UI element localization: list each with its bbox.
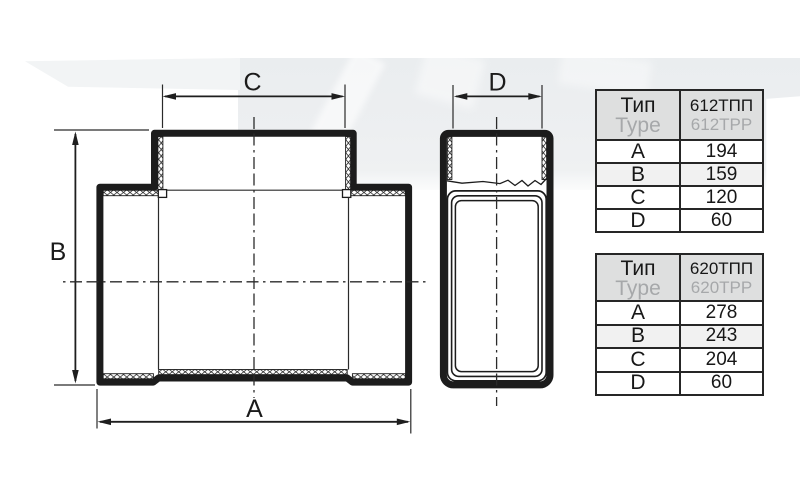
svg-text:C: C <box>243 69 261 97</box>
svg-text:D: D <box>488 69 506 97</box>
svg-text:B: B <box>50 238 67 266</box>
svg-text:A: A <box>246 395 263 423</box>
